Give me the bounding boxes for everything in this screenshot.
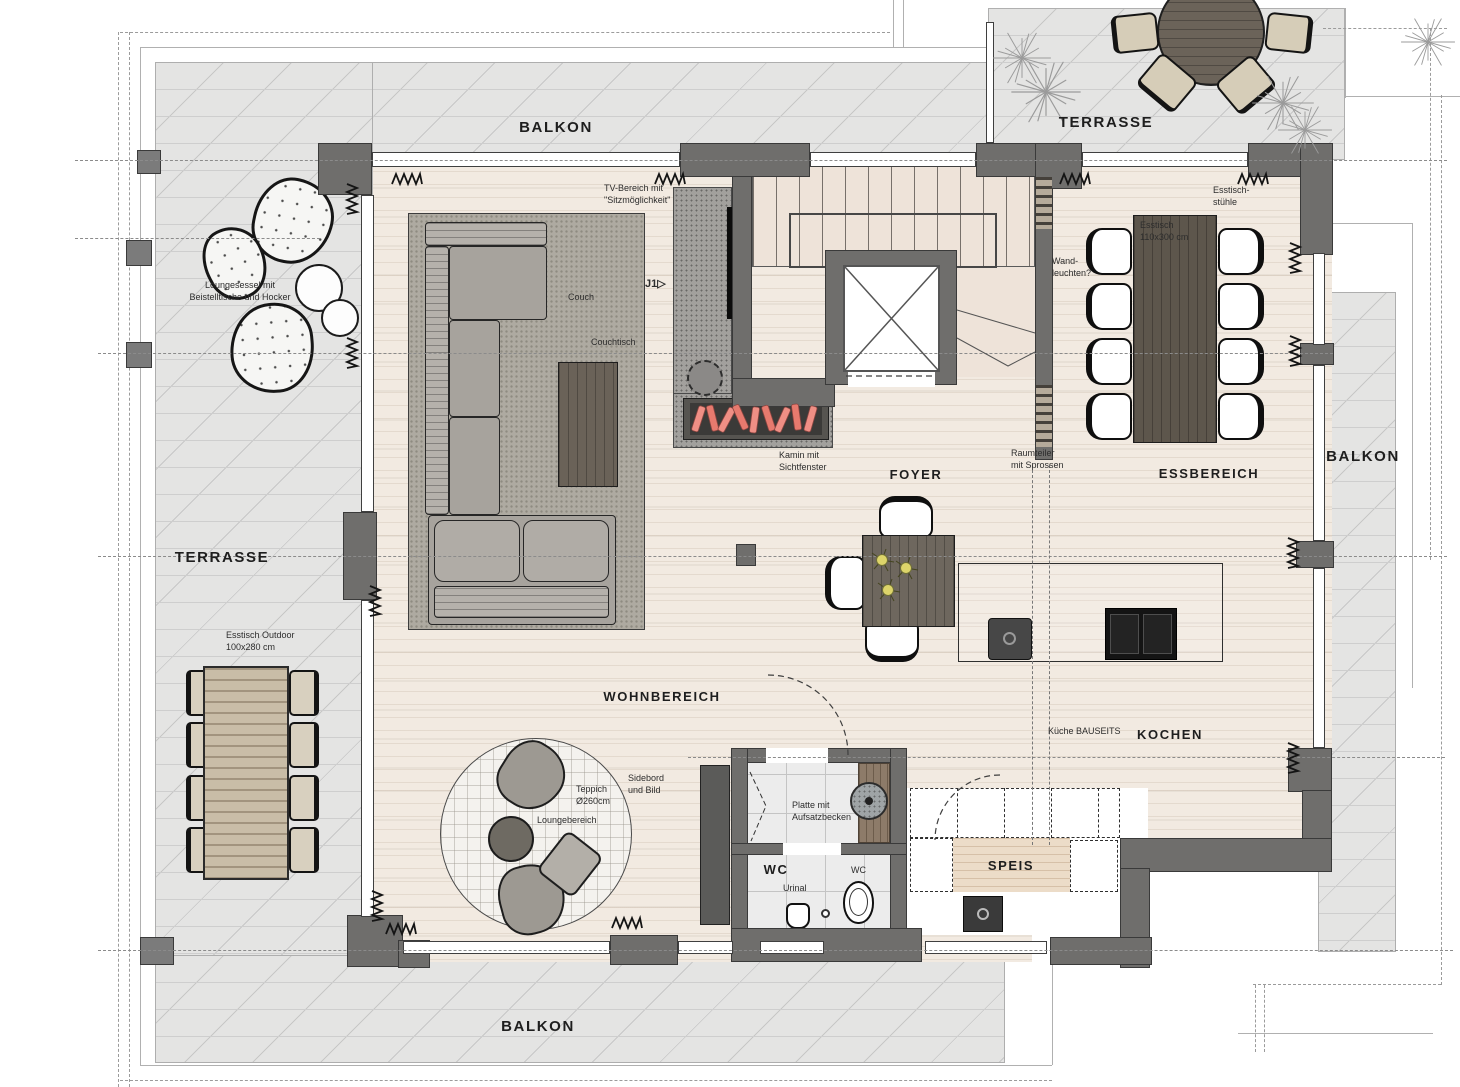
area-label-balkon-bottom: BALKON [501, 1018, 575, 1035]
annotation-loungesessel: Loungesessel mit Beistelltische und Hock… [189, 280, 290, 303]
elevator-shaft [843, 265, 940, 372]
dining-chair [1086, 393, 1132, 440]
annotation-j1-marker: J1▷ [645, 277, 666, 291]
elevator-door [848, 372, 935, 387]
area-label-wohnbereich: WOHNBEREICH [603, 689, 720, 704]
window [925, 941, 1047, 954]
sideboard [700, 765, 730, 925]
axis-marker [126, 342, 152, 368]
area-label-speis: SPEIS [988, 858, 1034, 873]
stair-winders [957, 267, 1035, 377]
area-label-terrasse-left: TERRASSE [175, 549, 269, 566]
wall-post [1288, 748, 1332, 792]
glass-divider [986, 22, 994, 143]
floor-kitchen-lower [1148, 790, 1302, 840]
couch-back-top [425, 222, 547, 246]
annotation-couchtisch: Couchtisch [591, 337, 636, 349]
couch-back-bottom [434, 586, 609, 618]
dining-chair [1086, 283, 1132, 330]
couch-seat-left [449, 320, 500, 417]
outdoor-dining-chair [289, 827, 319, 873]
annotation-tv-bereich: TV-Bereich mit "Sitzmöglichkeit" [604, 183, 670, 206]
area-label-wc-room: WC [764, 862, 789, 877]
dining-chair [1086, 338, 1132, 385]
annotation-wc-small: WC [851, 865, 866, 877]
area-label-balkon-right: BALKON [1326, 448, 1400, 465]
outdoor-dining-table [203, 666, 289, 880]
cooktop-zone [1143, 614, 1172, 654]
urinal [786, 903, 810, 929]
room-divider-rungs [1036, 385, 1052, 447]
area-label-essbereich: ESSBEREICH [1159, 466, 1260, 481]
stair-wall-left [732, 175, 752, 400]
annotation-kamin: Kamin mit Sichtfenster [779, 450, 827, 473]
dining-table [1133, 215, 1217, 443]
couch-cushion [434, 520, 520, 582]
axis-marker [140, 937, 174, 965]
outdoor-chair [1110, 12, 1160, 55]
area-label-terrasse-top-right: TERRASSE [1059, 114, 1153, 131]
couch-back-left [425, 246, 449, 515]
dining-chair [1218, 393, 1264, 440]
wall-step [1120, 838, 1332, 872]
dining-chair [1218, 283, 1264, 330]
axis-marker [126, 240, 152, 266]
couch-cushion [523, 520, 609, 582]
kitchen-chair [879, 496, 933, 538]
firebox-inner [690, 403, 822, 435]
dining-chair [1218, 228, 1264, 275]
foyer-pillar [736, 544, 756, 566]
annotation-urinal: Urinal [783, 883, 807, 895]
wall-post [1300, 343, 1334, 365]
floor-plan: BALKONTERRASSETERRASSEBALKONBALKONWOHNBE… [0, 0, 1460, 1087]
annotation-wandleuchten: Wand- leuchten? [1052, 256, 1091, 279]
outdoor-dining-chair [289, 722, 319, 768]
window [403, 941, 610, 954]
lounge-side-table [488, 816, 534, 862]
wall-post [347, 915, 403, 967]
kitchen-table [862, 535, 955, 627]
couch-seat-left [449, 417, 500, 515]
speis-cabinets-top [910, 788, 1120, 838]
annotation-loungebereich: Loungebereich [537, 815, 597, 827]
room-divider-rungs [1036, 177, 1052, 229]
annotation-esstisch-outdoor: Esstisch Outdoor 100x280 cm [226, 630, 295, 653]
annotation-kueche-bauseits: Küche BAUSEITS [1048, 726, 1121, 738]
wall-step [1050, 937, 1152, 965]
kitchen-chair [825, 556, 865, 610]
dining-chair [1086, 228, 1132, 275]
basin-drain [865, 797, 873, 805]
annotation-esstisch: Esstisch 110x300 cm [1140, 220, 1188, 243]
window [1313, 365, 1325, 541]
axis-marker [137, 150, 161, 174]
outdoor-side-table [321, 299, 359, 337]
appliance-fan [977, 908, 989, 920]
wall-post [1296, 541, 1334, 568]
outdoor-dining-chair [289, 775, 319, 821]
outdoor-dining-chair [289, 670, 319, 716]
speis-cabinet-right [1070, 840, 1118, 892]
wall-post [318, 143, 372, 195]
toilet-inner [849, 888, 868, 916]
window [760, 941, 824, 954]
window [1313, 568, 1325, 748]
wood-storage [687, 360, 723, 396]
area-label-balkon-top: BALKON [519, 119, 593, 136]
balcony-bottom [155, 955, 1005, 1063]
outdoor-chair [1264, 12, 1314, 55]
floor-drain [821, 909, 830, 918]
area-label-kochen: KOCHEN [1137, 727, 1203, 742]
annotation-esstisch-stuehle: Esstisch- stühle [1213, 185, 1250, 208]
couch-seat-top [449, 246, 547, 320]
area-label-foyer: FOYER [890, 467, 943, 482]
annotation-platte: Platte mit Aufsatzbecken [792, 800, 851, 823]
window [678, 941, 733, 954]
dining-chair [1218, 338, 1264, 385]
annotation-couch: Couch [568, 292, 594, 304]
cooktop-zone [1110, 614, 1139, 654]
annotation-teppich: Teppich Ø260cm [576, 784, 610, 807]
speis-cabinet-left [910, 838, 953, 892]
coffee-table [558, 362, 618, 487]
stair-wall-bottom [732, 378, 835, 407]
window [1313, 253, 1325, 345]
sink-drain [1003, 632, 1016, 645]
annotation-sidebord: Sidebord und Bild [628, 773, 664, 796]
annotation-raumteiler: Raumteiler mit Sprossen [1011, 448, 1064, 471]
window [361, 600, 374, 917]
